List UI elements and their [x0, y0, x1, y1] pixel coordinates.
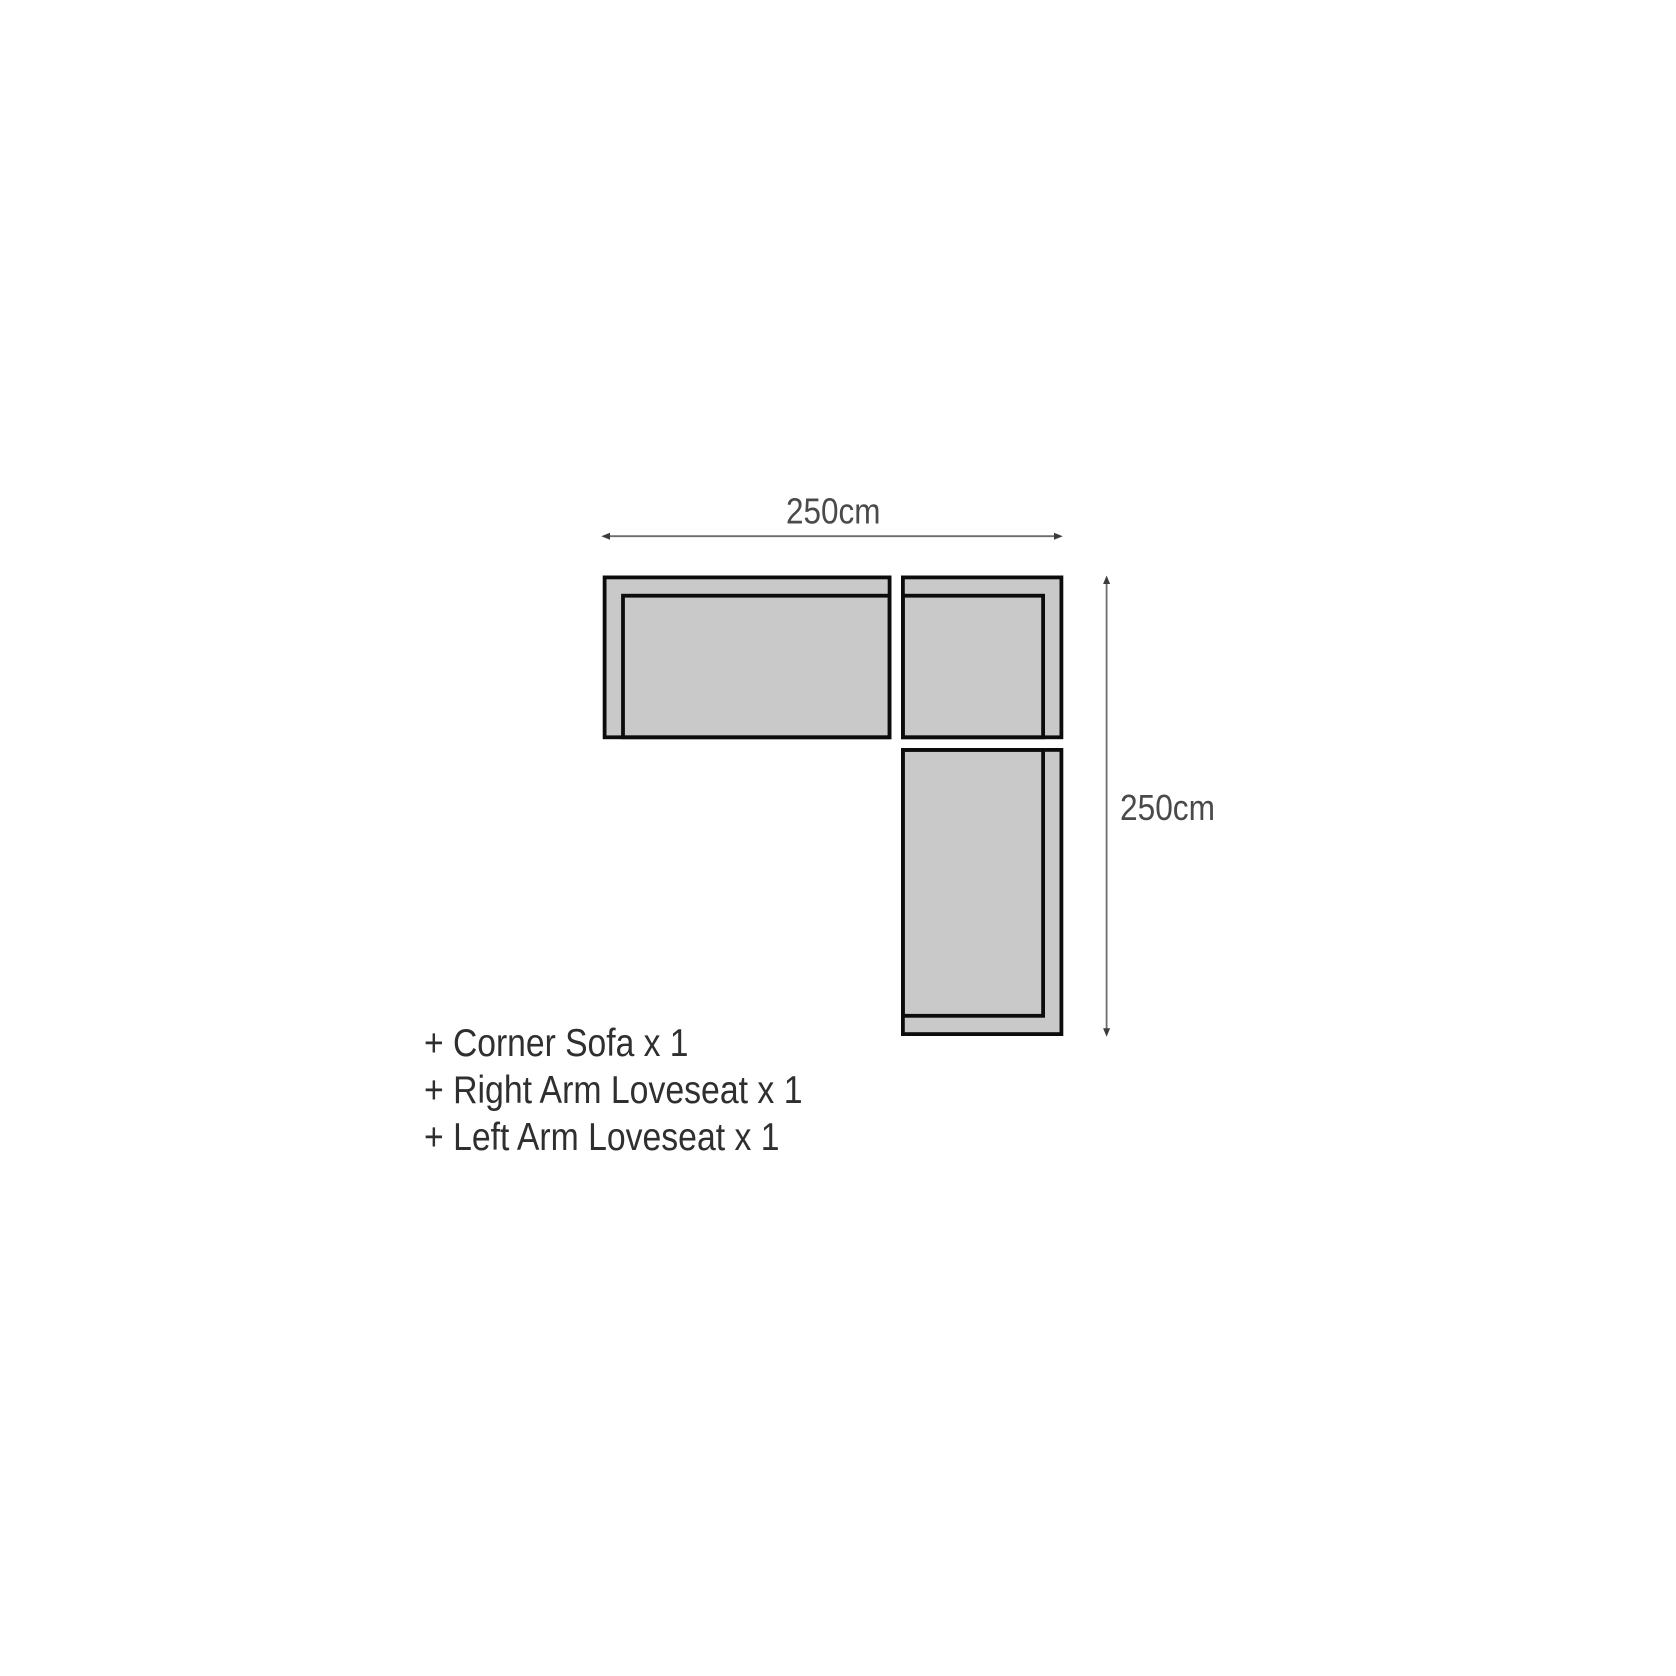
svg-text:+ Corner Sofa x 1: + Corner Sofa x 1 — [424, 1022, 689, 1065]
svg-text:+ Right Arm Loveseat x 1: + Right Arm Loveseat x 1 — [424, 1069, 803, 1112]
svg-text:+ Left Arm Loveseat x 1: + Left Arm Loveseat x 1 — [424, 1116, 780, 1159]
svg-text:250cm: 250cm — [786, 490, 881, 531]
svg-text:250cm: 250cm — [1120, 787, 1215, 828]
